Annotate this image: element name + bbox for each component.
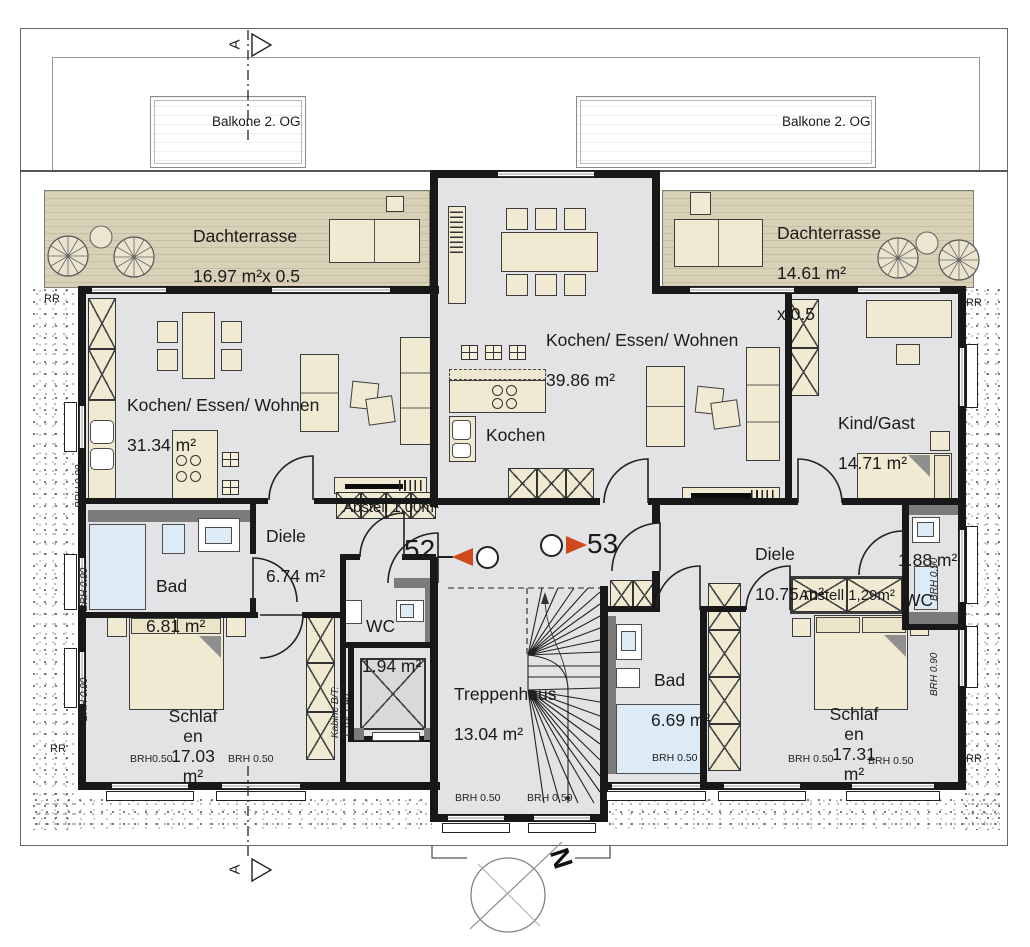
- room-area: 14.71 m²: [838, 453, 915, 473]
- room-area: 1.88 m²: [898, 550, 957, 570]
- washbasin-53: [616, 624, 642, 660]
- kitchen-53-sink-unit: [449, 416, 476, 462]
- floor-plan: Balkone 2. OG Balkone 2. OG: [0, 0, 1030, 947]
- pillow-icon: [934, 455, 950, 501]
- gravel-strip-bottom-left: [34, 798, 432, 830]
- room-name: Kochen/ Essen/ Wohnen: [127, 395, 319, 415]
- gravel-strip-bottom-right: [608, 798, 1000, 830]
- chair-53: [535, 208, 557, 230]
- room-name: Diele: [266, 526, 325, 546]
- apartment-number-52: 52: [404, 534, 435, 566]
- tv-icon: [345, 484, 403, 489]
- stool-icon: [509, 345, 526, 360]
- terrace-left-label: Dachterrasse 16.97 m²x 0.5: [193, 206, 300, 307]
- shelf-stripes: [450, 209, 463, 253]
- balcony-right-inner-line: [580, 100, 872, 164]
- marker-arrow-53-icon: [566, 536, 587, 554]
- window-sill: [966, 626, 978, 688]
- window: [534, 815, 590, 821]
- chair-52: [157, 349, 178, 371]
- dining-table-52: [182, 312, 215, 379]
- room-area: 6.81 m²: [146, 616, 205, 636]
- wardrobe-kindgast-cell: [788, 348, 819, 396]
- north-letter: N: [543, 844, 579, 872]
- sideboard-53: [448, 206, 466, 304]
- balcony-left-inner-line: [154, 100, 302, 164]
- room-name: Kind/Gast: [838, 413, 915, 433]
- terrace-right-area: 14.61 m²: [777, 263, 881, 283]
- room-area: 1.94 m²: [362, 656, 421, 676]
- brh-label: BRH 0.50: [455, 792, 501, 804]
- room-label-abstell-right: Abstell 1,29m²: [799, 587, 895, 604]
- brh-label-vertical: BRH 0.90: [79, 568, 90, 611]
- room-name: WC: [366, 616, 421, 636]
- side-table-terrace-left: [386, 196, 404, 212]
- desk-chair-kindgast: [896, 344, 920, 365]
- window: [92, 287, 166, 293]
- window-sill: [966, 344, 978, 408]
- chair-52: [221, 349, 242, 371]
- balcony-right-label: Balkone 2. OG: [782, 114, 871, 130]
- wall: [430, 286, 438, 507]
- armchair-52: [365, 395, 395, 425]
- toilet-53: [616, 668, 640, 688]
- section-letter-bottom: A: [227, 864, 244, 874]
- brh-label-vertical: BRH 0.90: [74, 465, 85, 508]
- kitchen-53-base-cell: [508, 468, 537, 499]
- window-sill: [528, 823, 596, 833]
- window-sill: [846, 791, 940, 801]
- room-label-treppenhaus: Treppenhaus 13.04 m²: [454, 664, 556, 765]
- brh-label-vertical: BRH 0.90: [929, 653, 940, 696]
- window-sill: [606, 791, 706, 801]
- elevator-label-line2: 1,10/ 1,40: [341, 686, 352, 738]
- window: [498, 171, 594, 177]
- room-label-wc-left: WC 1.94 m²: [362, 596, 421, 697]
- chair-52: [157, 321, 178, 343]
- section-letter-top: A: [227, 39, 244, 49]
- wall: [648, 498, 798, 505]
- room-label-schlafen-left: Schlaf en 17.03 m²: [146, 706, 240, 787]
- chair-53: [506, 274, 528, 296]
- chair-53: [564, 274, 586, 296]
- wall: [340, 554, 360, 560]
- wall-cabinet-dashed: [449, 369, 546, 380]
- marker-circle-53: [540, 534, 563, 557]
- room-label-kindgast: Kind/Gast 14.71 m²: [838, 393, 915, 494]
- wardrobe-53-cell: [708, 724, 741, 771]
- room-label-diele-left: Diele 6.74 m²: [266, 506, 325, 607]
- room-area: 13.04 m²: [454, 724, 556, 744]
- books-icon: [399, 480, 423, 491]
- sink-icon: [452, 420, 471, 440]
- basin-icon: [621, 631, 636, 651]
- kitchen-53-base-cell: [566, 468, 594, 499]
- rr-label: RR: [966, 753, 982, 766]
- brh-label: BRH 0.50: [868, 755, 914, 767]
- window: [724, 783, 800, 789]
- stool-icon: [222, 480, 239, 495]
- cabinet-52-tall: [88, 298, 116, 349]
- room-label-bad-left: Bad 6.81 m²: [156, 556, 205, 657]
- wall: [430, 557, 438, 790]
- room-area: 31.34 m²: [127, 435, 319, 455]
- dishwasher-icon: [452, 443, 471, 458]
- room-label-bad-right: Bad 6.69 m²: [651, 650, 710, 751]
- window-sill: [106, 791, 194, 801]
- chair-53: [535, 274, 557, 296]
- window-sill: [966, 526, 978, 604]
- balcony-right-outline: [576, 96, 876, 168]
- window: [959, 530, 965, 602]
- marker-arrow-52-icon: [452, 548, 473, 566]
- stool-icon: [461, 345, 478, 360]
- cabinet-52-tall: [88, 349, 116, 400]
- window-sill: [718, 791, 806, 801]
- cooktop-burner: [492, 398, 503, 409]
- brh-label-vertical: BRH 0.90: [79, 678, 90, 721]
- terrace-left-area: 16.97 m²x 0.5: [193, 266, 300, 286]
- section-triangle-icon: [252, 859, 271, 881]
- window: [959, 630, 965, 686]
- elevator-label-line1: Kabine B/T:: [330, 686, 341, 738]
- window: [448, 815, 504, 821]
- basin-icon: [205, 527, 232, 544]
- balcony-left-outline: [150, 96, 306, 168]
- wall: [600, 586, 608, 790]
- wall: [438, 498, 600, 505]
- wardrobe-52-cell: [306, 614, 335, 663]
- elevator-label: Kabine B/T: 1,10/ 1,40: [330, 686, 352, 738]
- nightstand-kindgast: [930, 431, 950, 451]
- wall: [250, 504, 256, 554]
- terrace-right-label: Dachterrasse 14.61 m² x 0.5: [777, 203, 881, 344]
- brh-label: BRH 0.50: [228, 753, 274, 765]
- room-area: 6.69 m²: [651, 710, 710, 730]
- window: [612, 783, 700, 789]
- brh-label: BRH 0.50: [527, 792, 573, 804]
- window-sill: [64, 648, 77, 708]
- room-label-living-left: Kochen/ Essen/ Wohnen 31.34 m²: [127, 375, 319, 476]
- chair-53: [564, 208, 586, 230]
- elevator-door-jamb: [354, 728, 364, 740]
- window: [959, 348, 965, 406]
- room-label-kochen: Kochen: [486, 425, 545, 445]
- wardrobe-53-cell: [708, 630, 741, 677]
- brh-label: BRH 0.50: [788, 753, 834, 765]
- compass-group: [432, 842, 610, 932]
- wc-52-basin: [344, 600, 362, 624]
- window-sill: [216, 791, 306, 801]
- side-table-terrace-right: [690, 192, 711, 215]
- elevator-door: [372, 732, 420, 741]
- brh-label-vertical: BRH 0.90: [929, 558, 940, 601]
- room-name: Diele: [755, 544, 824, 564]
- bad-53-wall-strip: [608, 616, 616, 774]
- wc-52-duct: [394, 578, 434, 588]
- room-name: Treppenhaus: [454, 684, 556, 704]
- blanket-fold-icon: [884, 635, 906, 657]
- terrace-right-factor: x 0.5: [777, 304, 881, 324]
- wall: [842, 498, 960, 505]
- compass-circle: [471, 858, 545, 932]
- terrace-left-name: Dachterrasse: [193, 226, 300, 246]
- marker-circle-52: [476, 546, 499, 569]
- room-label-wc-right: 1.88 m² WC: [898, 530, 957, 631]
- dining-table-53: [501, 232, 598, 272]
- nightstand-52: [226, 617, 246, 637]
- room-name: Kochen/ Essen/ Wohnen: [546, 330, 738, 350]
- lounger-terrace-left: [329, 219, 420, 263]
- brh-label: BRH0.50: [130, 753, 173, 765]
- lounger-terrace-right: [674, 219, 763, 267]
- rr-label: RR: [50, 743, 66, 756]
- kitchen-52-sink-icon: [90, 420, 114, 444]
- room-area: 6.74 m²: [266, 566, 325, 586]
- washbasin-52: [198, 518, 240, 552]
- kitchen-53-base-cell: [537, 468, 566, 499]
- wardrobe-53-cell: [708, 677, 741, 724]
- l-sofa-53: [746, 347, 780, 461]
- wall: [430, 170, 438, 294]
- wall: [608, 606, 655, 612]
- kitchen-52-dishwasher-icon: [90, 448, 114, 470]
- balcony-left-label: Balkone 2. OG: [212, 114, 301, 130]
- apartment-number-53: 53: [587, 528, 618, 560]
- wall: [340, 554, 346, 790]
- room-area: 39.86 m²: [546, 370, 738, 390]
- brh-label: BRH 0.50: [652, 752, 698, 764]
- rr-label: RR: [966, 297, 982, 310]
- chair-53: [506, 208, 528, 230]
- terrace-right-name: Dachterrasse: [777, 223, 881, 243]
- room-label-diele-right: Diele 10.75 m²: [755, 524, 824, 625]
- window-sill: [442, 823, 510, 833]
- wall: [652, 170, 660, 294]
- window: [79, 406, 85, 448]
- bathtub-52: [89, 524, 146, 610]
- window-sill: [64, 554, 77, 610]
- room-name: Bad: [654, 670, 710, 690]
- cooktop-burner: [492, 385, 503, 396]
- chair-52: [221, 321, 242, 343]
- room-label-living-right: Kochen/ Essen/ Wohnen 39.86 m²: [546, 310, 738, 411]
- room-label-schlafen-right: Schlaf en 17.31 m²: [806, 704, 902, 785]
- nightstand-52: [107, 617, 127, 637]
- wall: [652, 505, 660, 523]
- room-name: Bad: [156, 576, 205, 596]
- cooktop-burner: [506, 385, 517, 396]
- window-sill: [64, 402, 77, 452]
- wall: [86, 498, 268, 504]
- room-label-abstell-left: Abstell 1,00m²: [343, 499, 439, 516]
- bath-cabinet-52: [162, 524, 185, 554]
- marker-line-52: [438, 556, 453, 558]
- cooktop-burner: [506, 398, 517, 409]
- rr-label: RR: [44, 293, 60, 306]
- stool-icon: [485, 345, 502, 360]
